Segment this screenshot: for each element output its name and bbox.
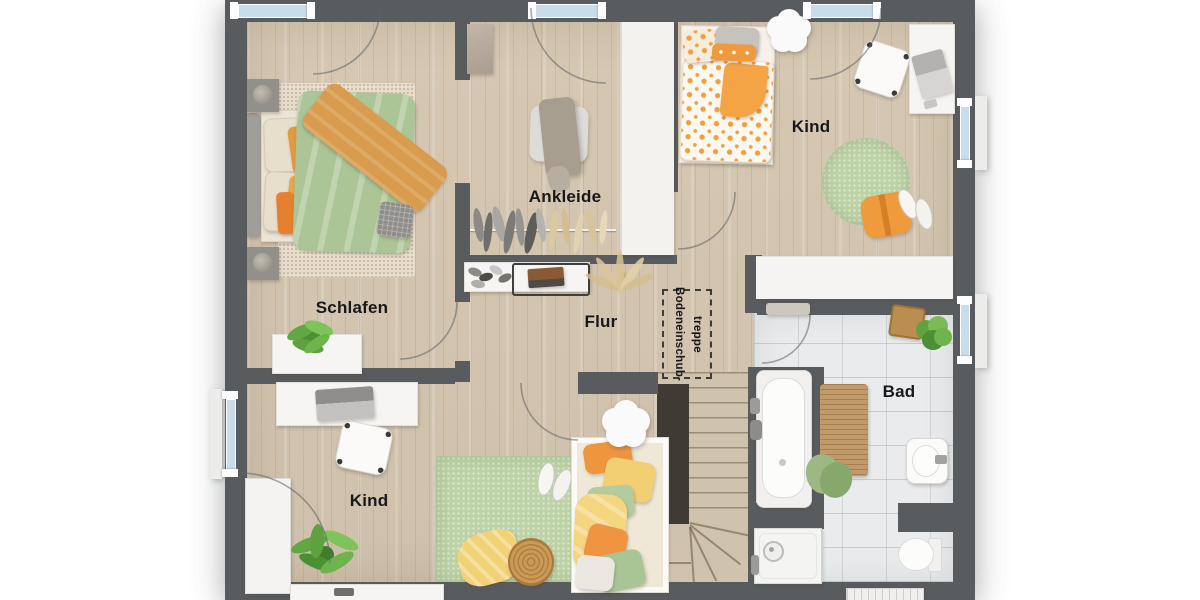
mirror-panel (467, 24, 493, 74)
window-frame-cap (307, 2, 315, 19)
laptop-bottom (315, 386, 375, 422)
room-label-flur: Flur (585, 312, 618, 332)
desk-chair-bottom (334, 419, 395, 477)
window-right-bad (960, 304, 970, 358)
shower (754, 528, 822, 584)
shower-glass-edge (821, 529, 823, 582)
room-label-kind-top: Kind (792, 117, 831, 137)
attic-hatch-stairs: Bodeneinschub-treppe (662, 289, 712, 379)
attic-hatch-label: Bodeneinschub-treppe (669, 287, 705, 381)
toilet (898, 536, 942, 572)
potted-plant (282, 312, 338, 368)
wall-flur-stairs (578, 372, 658, 394)
bed-headboard (247, 113, 261, 237)
room-label-bad: Bad (883, 382, 916, 402)
window-recess (975, 294, 987, 368)
wall-toilet-niche (898, 503, 953, 532)
window-frame-cap (957, 296, 972, 304)
books-on-bench (527, 267, 564, 288)
slippers-bottom (536, 462, 572, 512)
pampas-plant (596, 248, 648, 308)
washbasin (906, 438, 948, 484)
window-frame-cap (957, 356, 972, 364)
window-right-kind (960, 106, 970, 162)
room-label-kind-bottom: Kind (350, 491, 389, 511)
flower-side-table-bottom (610, 408, 642, 440)
wardrobe-bottom (245, 478, 291, 594)
window-frame-cap (873, 2, 881, 19)
window-recess (975, 96, 987, 170)
palm-plant (288, 518, 364, 588)
orange-bolster (712, 43, 757, 62)
woven-basket (508, 538, 554, 586)
window-top-schlafen (238, 4, 310, 18)
folded-blanket (376, 201, 414, 239)
window-left-kind (226, 399, 236, 471)
window-top-ankleide (535, 4, 601, 18)
white-pillow-bed (574, 554, 615, 592)
table-lamp (253, 85, 272, 104)
room-label-schlafen: Schlafen (316, 298, 388, 318)
stair-landing (657, 520, 752, 582)
staircase (657, 372, 752, 582)
floor-plan: Bodeneinschub-treppe (0, 0, 1200, 600)
window-frame-cap (957, 160, 972, 168)
towel-radiator (846, 588, 924, 600)
window-frame-cap (222, 391, 238, 399)
shelf-items (334, 588, 354, 596)
window-frame-cap (957, 98, 972, 106)
wardrobe (620, 22, 674, 255)
slippers (900, 188, 936, 234)
low-shelf (290, 584, 444, 600)
window-recess (210, 389, 222, 479)
bathroom-plant (910, 314, 956, 360)
flower-side-table (774, 16, 804, 46)
window-frame-cap (598, 2, 606, 19)
bathtub-faucet (750, 398, 762, 442)
green-towel (806, 450, 854, 500)
table-lamp (253, 253, 272, 272)
towel-on-wall (766, 303, 810, 315)
window-frame-cap (222, 469, 238, 477)
bathtub (756, 370, 812, 508)
dresser (756, 256, 953, 299)
room-label-ankleide: Ankleide (529, 187, 601, 207)
window-top-kind (810, 4, 876, 18)
wall-schlafen-ankleide-bottom (455, 361, 470, 382)
window-frame-cap (230, 2, 238, 19)
